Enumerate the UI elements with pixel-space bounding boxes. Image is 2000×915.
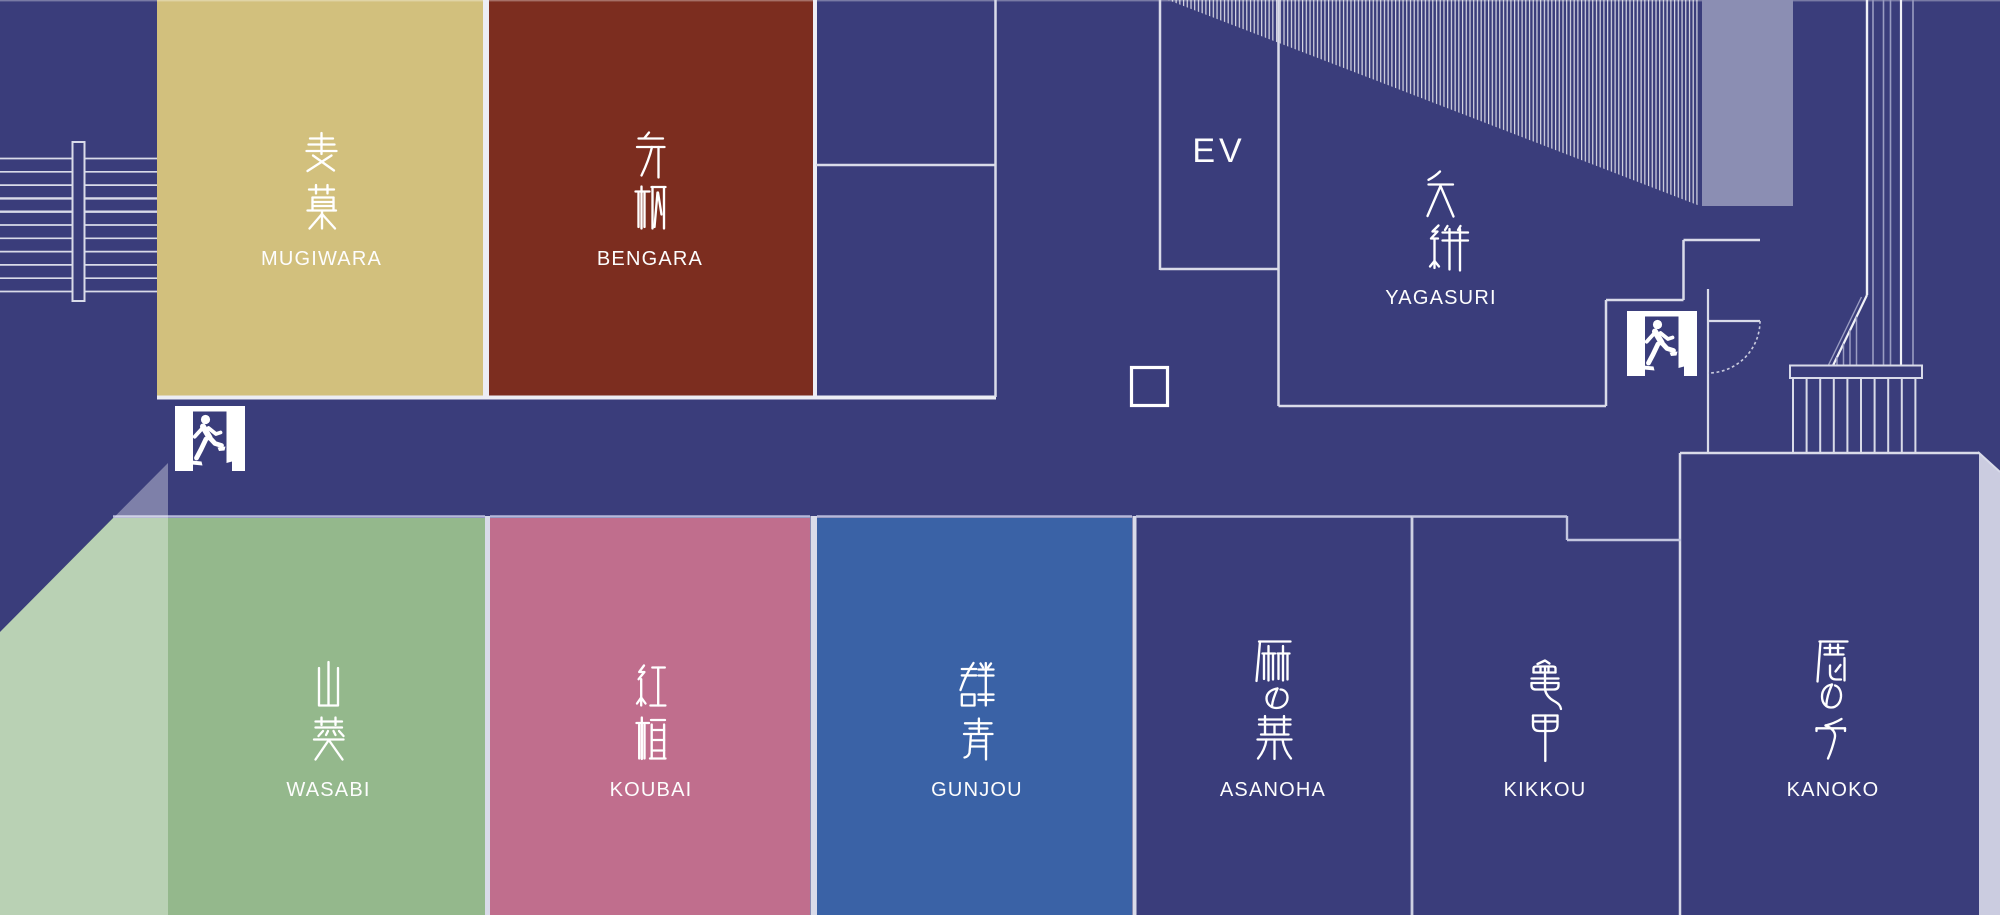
svg-text:EV: EV xyxy=(1192,132,1245,170)
svg-text:GUNJOU: GUNJOU xyxy=(931,779,1023,801)
svg-text:WASABI: WASABI xyxy=(286,779,370,801)
svg-text:YAGASURI: YAGASURI xyxy=(1385,287,1496,309)
svg-text:KIKKOU: KIKKOU xyxy=(1504,779,1587,801)
svg-text:KANOKO: KANOKO xyxy=(1787,779,1880,801)
svg-text:KOUBAI: KOUBAI xyxy=(610,779,693,801)
svg-text:MUGIWARA: MUGIWARA xyxy=(261,248,382,270)
svg-text:ASANOHA: ASANOHA xyxy=(1220,779,1326,801)
svg-text:BENGARA: BENGARA xyxy=(597,248,703,270)
